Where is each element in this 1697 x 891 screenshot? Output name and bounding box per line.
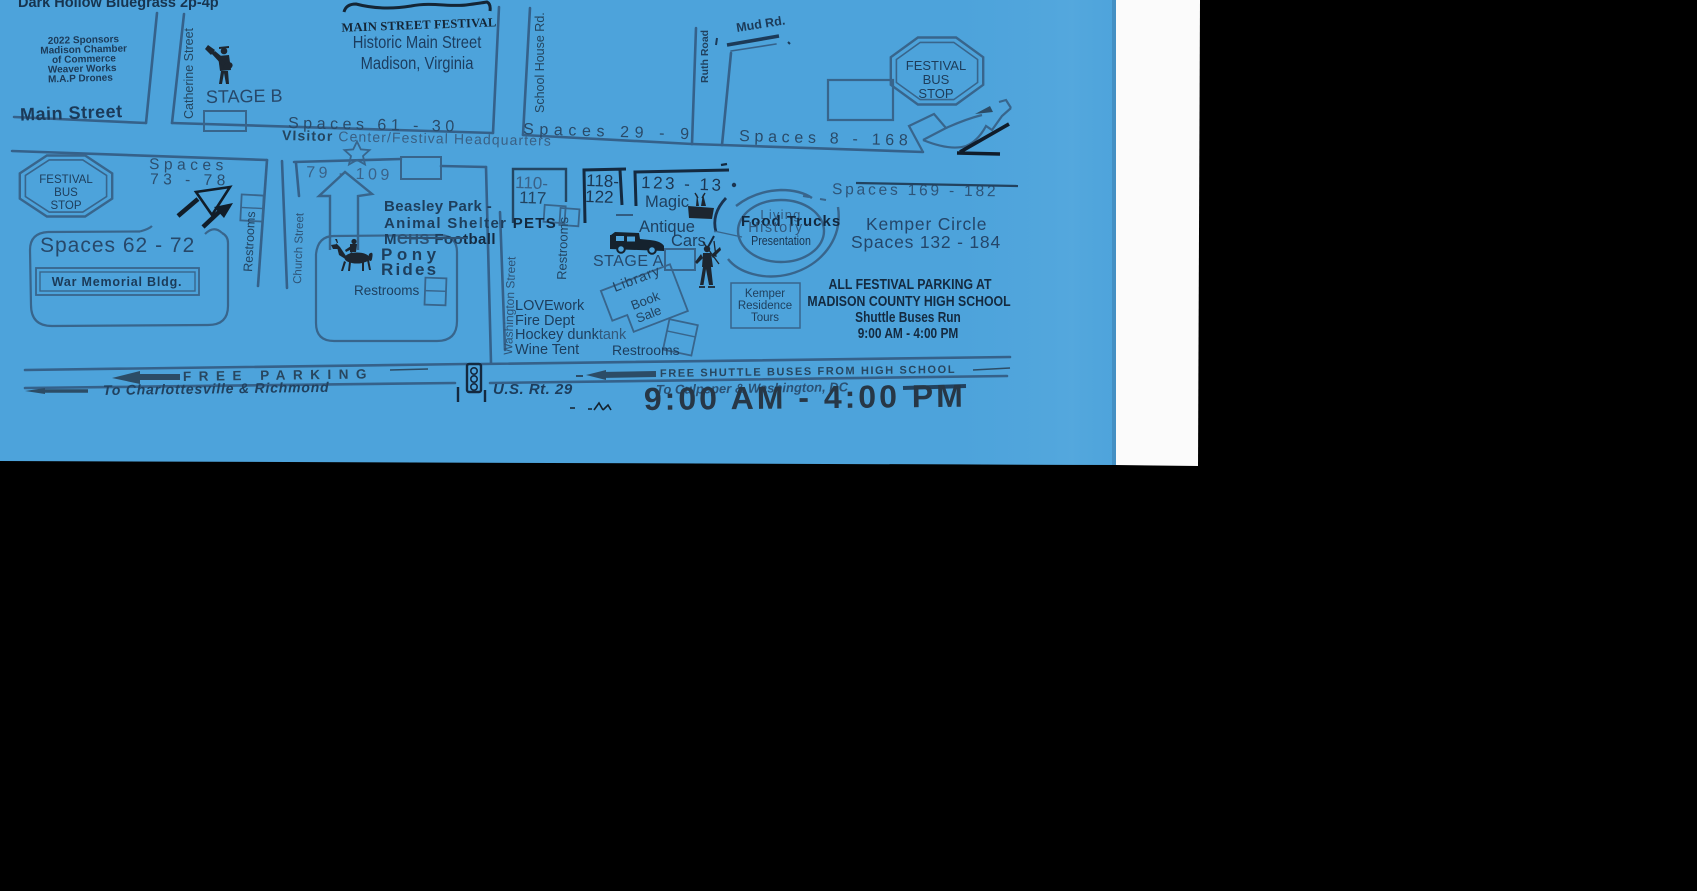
svg-text:Shuttle Buses Run: Shuttle Buses Run bbox=[855, 309, 961, 325]
svg-text:9:00 AM - 4:00 PM: 9:00 AM - 4:00 PM bbox=[858, 325, 959, 341]
svg-text:MADISON COUNTY HIGH SCHOOL: MADISON COUNTY HIGH SCHOOL bbox=[807, 293, 1010, 309]
svg-text:Dark Hollow Bluegrass 2p-4p: Dark Hollow Bluegrass 2p-4p bbox=[18, 0, 219, 11]
svg-text:FESTIVAL: FESTIVAL bbox=[39, 174, 93, 186]
svg-text:Madison, Virginia: Madison, Virginia bbox=[361, 54, 475, 74]
svg-text:School House Rd.: School House Rd. bbox=[533, 12, 547, 113]
svg-text:9:00 AM - 4:00 PM: 9:00 AM - 4:00 PM bbox=[644, 378, 966, 417]
svg-text:BUS: BUS bbox=[923, 72, 950, 87]
svg-text:117: 117 bbox=[519, 188, 547, 208]
svg-text:BUS: BUS bbox=[54, 187, 78, 199]
svg-text:STOP: STOP bbox=[50, 200, 81, 212]
svg-text:Hockey dunktank: Hockey dunktank bbox=[515, 327, 627, 343]
svg-text:LOVEwork: LOVEwork bbox=[515, 298, 585, 314]
svg-text:Wine Tent: Wine Tent bbox=[515, 342, 579, 358]
svg-text:Spaces 62 - 72: Spaces 62 - 72 bbox=[40, 234, 195, 257]
svg-text:123 - 13: 123 - 13 bbox=[641, 173, 724, 195]
svg-text:M.A.P Drones: M.A.P Drones bbox=[48, 73, 114, 86]
svg-text:Ruth Road: Ruth Road bbox=[699, 30, 711, 83]
svg-text:To Charlottesville & Richmond: To Charlottesville & Richmond bbox=[103, 379, 330, 398]
svg-text:Tours: Tours bbox=[751, 312, 779, 324]
svg-text:Church Street: Church Street bbox=[292, 212, 306, 284]
svg-text:Presentation: Presentation bbox=[751, 233, 811, 248]
svg-text:Historic Main Street: Historic Main Street bbox=[353, 33, 482, 53]
svg-text:STOP: STOP bbox=[918, 86, 953, 101]
svg-text:122: 122 bbox=[585, 187, 614, 207]
svg-text:Animal Shelter PETS: Animal Shelter PETS bbox=[384, 215, 557, 232]
svg-text:Magic: Magic bbox=[645, 193, 689, 211]
svg-text:Beasley Park -: Beasley Park - bbox=[384, 198, 492, 215]
svg-text:Main Street: Main Street bbox=[20, 101, 123, 125]
svg-text:Restrooms: Restrooms bbox=[354, 283, 420, 298]
svg-text:Spaces 132 - 184: Spaces 132 - 184 bbox=[851, 232, 1001, 252]
svg-text:Kemper: Kemper bbox=[745, 288, 785, 300]
svg-text:STAGE B: STAGE B bbox=[206, 86, 283, 107]
svg-text:73 - 78: 73 - 78 bbox=[150, 171, 230, 189]
svg-text:79 - 109: 79 - 109 bbox=[306, 164, 393, 184]
svg-text:Rides: Rides bbox=[381, 260, 438, 279]
svg-text:Kemper Circle: Kemper Circle bbox=[866, 214, 987, 234]
svg-text:ALL FESTIVAL PARKING AT: ALL FESTIVAL PARKING AT bbox=[829, 276, 992, 292]
svg-text:Residence: Residence bbox=[738, 300, 792, 312]
svg-text:War Memorial Bldg.: War Memorial Bldg. bbox=[52, 275, 183, 289]
svg-text:FESTIVAL: FESTIVAL bbox=[906, 58, 966, 73]
svg-text:Cars: Cars bbox=[671, 232, 706, 250]
svg-text:Restrooms: Restrooms bbox=[554, 216, 571, 280]
svg-text:Restrooms: Restrooms bbox=[612, 342, 680, 358]
svg-text:U.S. Rt. 29: U.S. Rt. 29 bbox=[493, 381, 573, 398]
svg-text:Catherine Street: Catherine Street bbox=[182, 27, 196, 119]
